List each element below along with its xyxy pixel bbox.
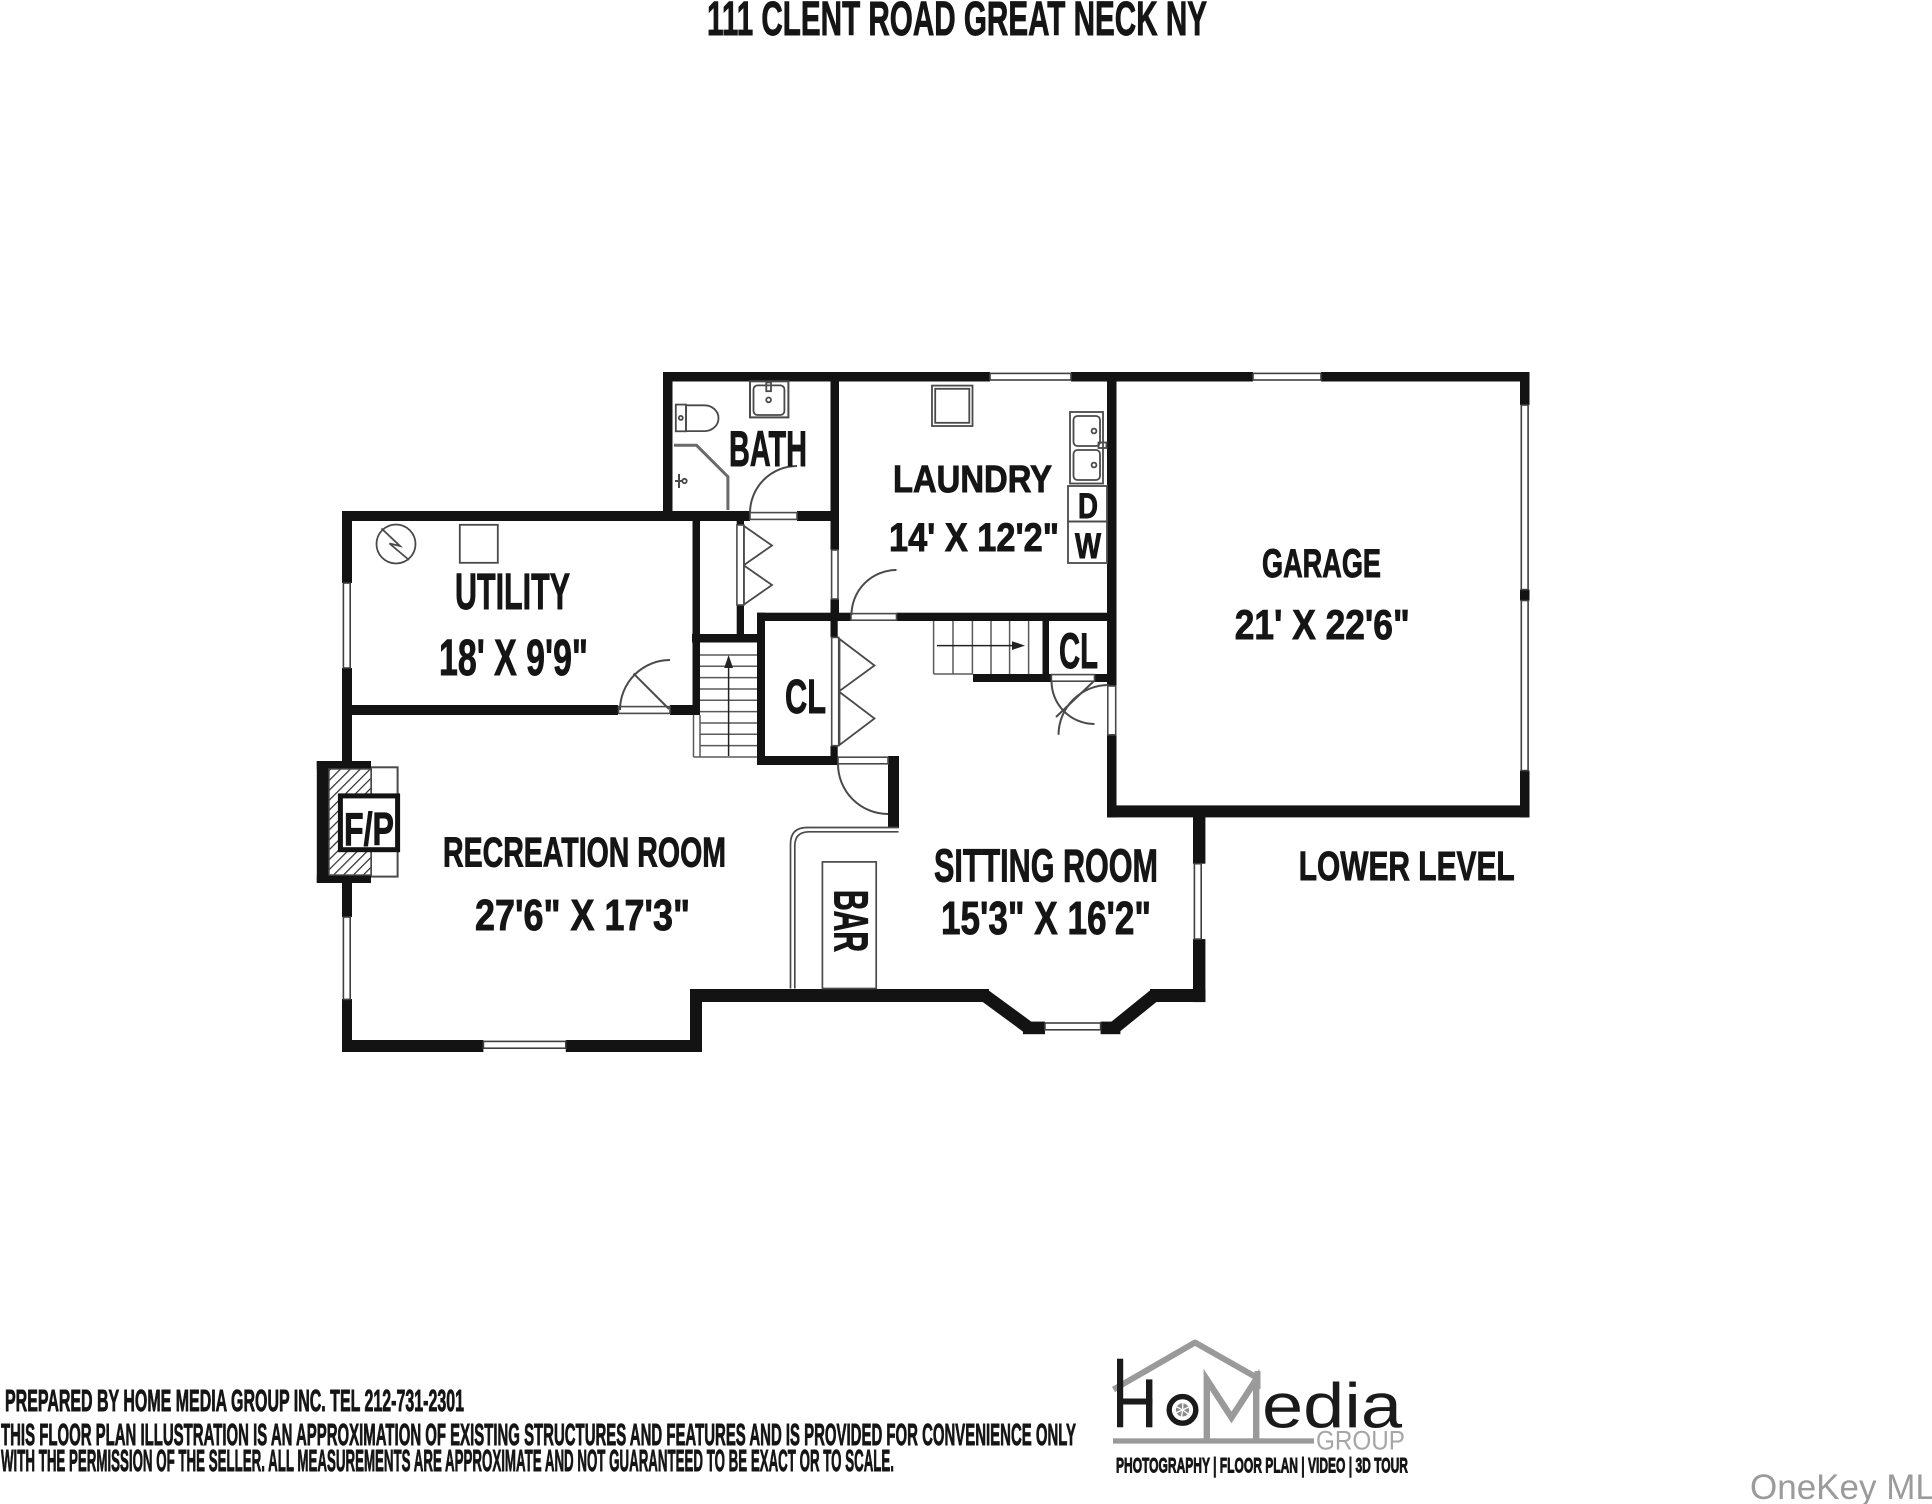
svg-text:BAR: BAR: [823, 890, 876, 952]
svg-text:BATH: BATH: [729, 421, 807, 477]
svg-text:CL: CL: [785, 671, 826, 724]
svg-text:WITH THE PERMISSION OF THE SEL: WITH THE PERMISSION OF THE SELLER. ALL M…: [1, 1443, 894, 1478]
svg-text:RECREATION ROOM: RECREATION ROOM: [443, 829, 726, 876]
svg-text:CL: CL: [1059, 623, 1098, 679]
svg-text:W: W: [1075, 527, 1101, 566]
svg-text:SITTING ROOM: SITTING ROOM: [934, 840, 1158, 892]
svg-text:GARAGE: GARAGE: [1262, 542, 1381, 586]
svg-text:18' X 9'9": 18' X 9'9": [439, 629, 588, 686]
svg-text:LOWER LEVEL: LOWER LEVEL: [1299, 843, 1515, 889]
svg-text:14' X 12'2": 14' X 12'2": [889, 516, 1059, 560]
svg-text:GROUP: GROUP: [1316, 1426, 1405, 1456]
svg-text:D: D: [1078, 487, 1098, 526]
svg-text:LAUNDRY: LAUNDRY: [893, 459, 1052, 501]
svg-text:PHOTOGRAPHY | FLOOR PLAN | VID: PHOTOGRAPHY | FLOOR PLAN | VIDEO | 3D TO…: [1116, 1455, 1408, 1478]
svg-text:OneKey MLS: OneKey MLS: [1750, 1468, 1932, 1504]
svg-text:F/P: F/P: [344, 803, 394, 855]
svg-text:21' X 22'6": 21' X 22'6": [1235, 601, 1410, 648]
svg-text:UTILITY: UTILITY: [455, 563, 570, 620]
svg-text:27'6" X 17'3": 27'6" X 17'3": [475, 891, 690, 940]
svg-text:111 CLENT ROAD GREAT NECK NY: 111 CLENT ROAD GREAT NECK NY: [707, 0, 1207, 46]
svg-text:PREPARED BY HOME MEDIA GROUP: PREPARED BY HOME MEDIA GROUP INC. TEL 21…: [5, 1383, 464, 1418]
svg-text:15'3" X 16'2": 15'3" X 16'2": [941, 892, 1151, 944]
